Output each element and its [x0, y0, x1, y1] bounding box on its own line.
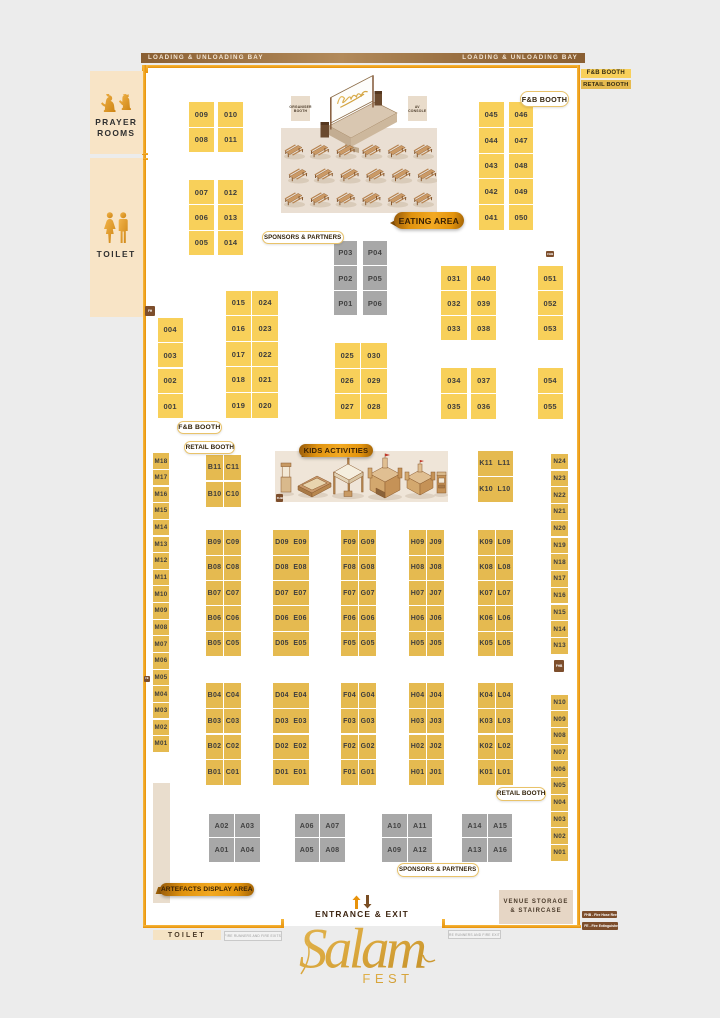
svg-text:FEST: FEST: [362, 971, 413, 986]
